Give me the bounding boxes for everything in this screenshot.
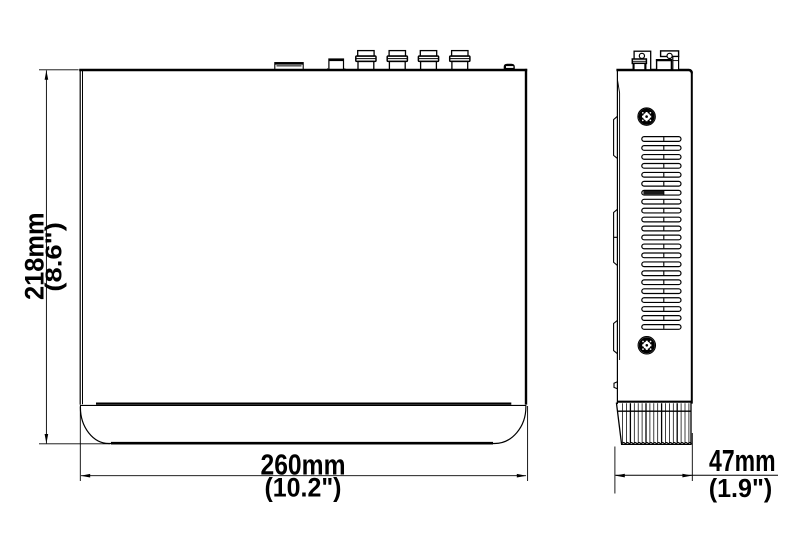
svg-text:(10.2"): (10.2"): [265, 473, 342, 503]
svg-text:(1.9"): (1.9"): [709, 473, 773, 503]
svg-text:(8.6"): (8.6"): [41, 222, 67, 292]
